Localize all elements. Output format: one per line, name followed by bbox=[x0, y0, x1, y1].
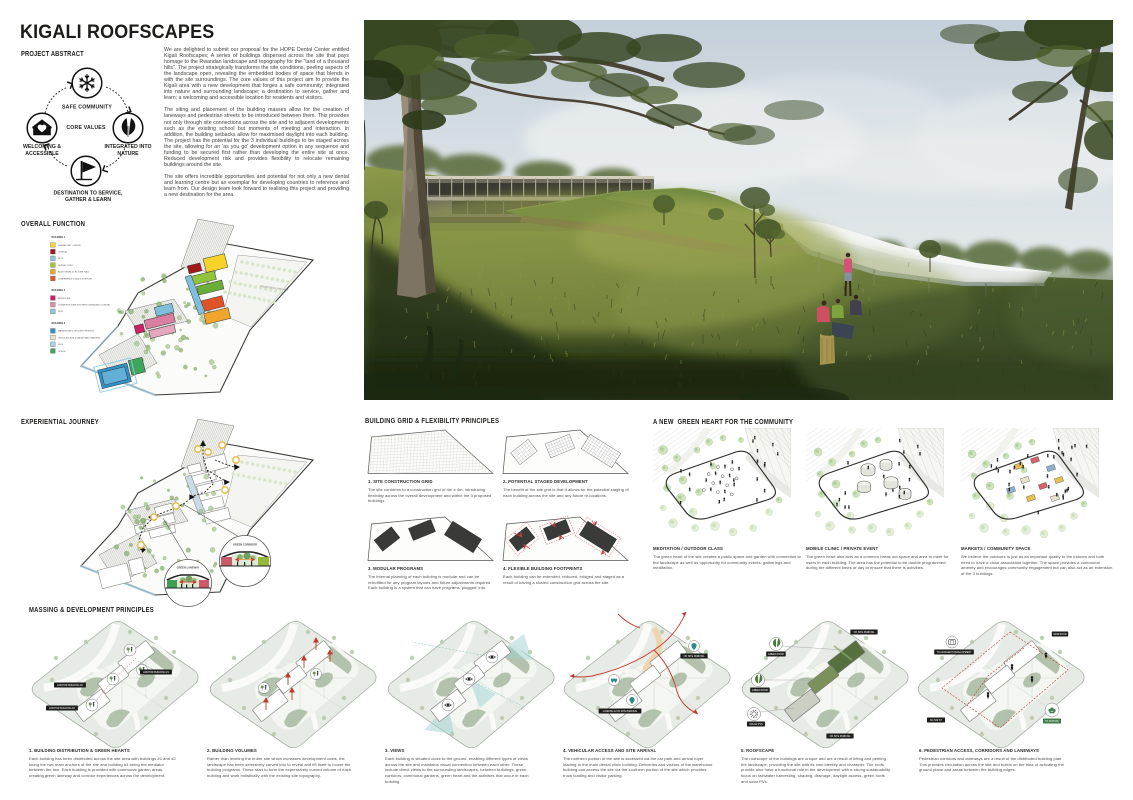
svg-text:LOADING & ON SITE PARKING: LOADING & ON SITE PARKING bbox=[603, 710, 638, 713]
svg-text:TO SCHOOL: TO SCHOOL bbox=[1045, 720, 1060, 723]
svg-text:KG 549 ST: KG 549 ST bbox=[930, 719, 942, 722]
svg-text:GREEN ROOF: GREEN ROOF bbox=[768, 653, 785, 656]
svg-text:GREEN LANEWAY: GREEN LANEWAY bbox=[177, 566, 200, 570]
svg-text:GREEN ROOF: GREEN ROOF bbox=[752, 689, 769, 692]
svg-text:GREEN CORRIDOR: GREEN CORRIDOR bbox=[233, 543, 257, 547]
svg-text:WELCOMING &ACCESSIBLE: WELCOMING &ACCESSIBLE bbox=[23, 144, 61, 157]
svg-text:NEW ROAD: NEW ROAD bbox=[1053, 633, 1066, 636]
svg-text:SOLAR PVS: SOLAR PVS bbox=[749, 723, 763, 726]
svg-text:DESTINATION TO SERVICE,GATHER: DESTINATION TO SERVICE,GATHER & LEARN bbox=[54, 191, 123, 204]
svg-text:SAFE COMMUNITY: SAFE COMMUNITY bbox=[62, 105, 112, 111]
svg-text:TO ADJACENT DEVELOPMENT: TO ADJACENT DEVELOPMENT bbox=[936, 651, 972, 654]
svg-text:CORE VALUES: CORE VALUES bbox=[66, 125, 106, 131]
svg-text:ANCHOR BUILDING #1: ANCHOR BUILDING #1 bbox=[143, 671, 169, 674]
svg-text:ANCHOR BUILDING #3: ANCHOR BUILDING #3 bbox=[49, 707, 75, 710]
svg-text:ON SITE PARKING: ON SITE PARKING bbox=[830, 735, 851, 738]
svg-text:ON SITE PARKING: ON SITE PARKING bbox=[684, 655, 705, 658]
svg-text:ON SITE PARKING: ON SITE PARKING bbox=[854, 631, 875, 634]
svg-text:INTEGRATED INTONATURE: INTEGRATED INTONATURE bbox=[104, 144, 151, 157]
svg-text:ANCHOR BUILDING #2: ANCHOR BUILDING #2 bbox=[57, 684, 83, 687]
